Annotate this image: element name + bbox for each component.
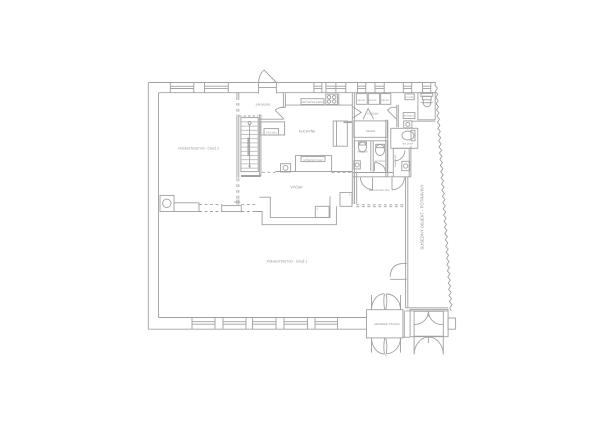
- svg-text:POHOSTINSTVO - ČASŽ 2: POHOSTINSTVO - ČASŽ 2: [178, 146, 219, 150]
- svg-text:CHODBA: CHODBA: [367, 113, 378, 116]
- svg-text:SKLAD: SKLAD: [366, 129, 375, 133]
- svg-text:SKLAD: SKLAD: [381, 99, 389, 102]
- svg-text:13x178/280: 13x178/280: [247, 137, 250, 155]
- svg-text:Zádverie WC: Zádverie WC: [394, 154, 397, 167]
- svg-text:UMÝVADLO: UMÝVADLO: [403, 115, 415, 118]
- svg-text:SUSEDNÝ OBJEKT - POTRAVINY: SUSEDNÝ OBJEKT - POTRAVINY: [419, 184, 424, 249]
- svg-text:a: a: [317, 208, 319, 211]
- svg-text:UMÝVAČKA RIADU: UMÝVAČKA RIADU: [301, 100, 324, 104]
- svg-text:SKLAD: SKLAD: [369, 99, 377, 102]
- svg-text:a: a: [349, 194, 351, 197]
- svg-text:POHOSTINSTVO - ČASŽ 1: POHOSTINSTVO - ČASŽ 1: [267, 259, 308, 263]
- svg-text:ZÁDVERIE VSTUPU: ZÁDVERIE VSTUPU: [374, 322, 400, 326]
- svg-text:PLATŇA: PLATŇA: [405, 96, 414, 99]
- svg-text:VÝLEVKA: VÝLEVKA: [266, 131, 277, 135]
- svg-text:SKLAD: SKLAD: [357, 99, 365, 102]
- svg-text:WC MUŽI: WC MUŽI: [357, 150, 368, 154]
- svg-text:WC MUŽI: WC MUŽI: [422, 101, 432, 104]
- svg-text:WC ŽENY: WC ŽENY: [402, 141, 413, 145]
- svg-text:Zádverie WC žien: Zádverie WC žien: [369, 189, 390, 192]
- svg-text:ZÁDVERIE: ZÁDVERIE: [255, 103, 270, 107]
- svg-text:WC ŽENY: WC ŽENY: [374, 159, 385, 163]
- svg-text:VÝČAP: VÝČAP: [290, 184, 303, 189]
- svg-text:VÝČAPNÝ PULT: VÝČAPNÝ PULT: [303, 158, 323, 162]
- svg-text:KUCHYŇA: KUCHYŇA: [299, 130, 316, 134]
